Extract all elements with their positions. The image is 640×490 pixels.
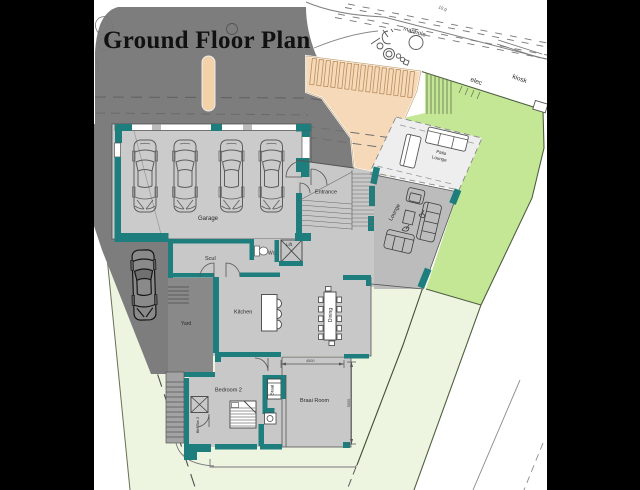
- svg-text:Dining: Dining: [328, 308, 334, 322]
- svg-text:Bth Ste 2: Bth Ste 2: [195, 416, 200, 433]
- svg-text:4500: 4500: [306, 359, 314, 363]
- svg-text:Entrance: Entrance: [315, 190, 337, 196]
- svg-text:Yard: Yard: [181, 321, 191, 327]
- svg-text:Ground Floor Plan: Ground Floor Plan: [103, 27, 311, 54]
- svg-text:Kitchen: Kitchen: [234, 310, 252, 316]
- svg-text:Braai: Braai: [270, 385, 275, 396]
- svg-text:Garage: Garage: [198, 216, 219, 222]
- svg-text:5000: 5000: [347, 399, 351, 407]
- svg-text:Wc: Wc: [268, 251, 276, 257]
- svg-text:Lift: Lift: [286, 242, 293, 247]
- svg-text:Scul: Scul: [205, 256, 216, 262]
- svg-text:Braai Room: Braai Room: [300, 398, 329, 404]
- svg-text:Bedroom 2: Bedroom 2: [215, 388, 242, 394]
